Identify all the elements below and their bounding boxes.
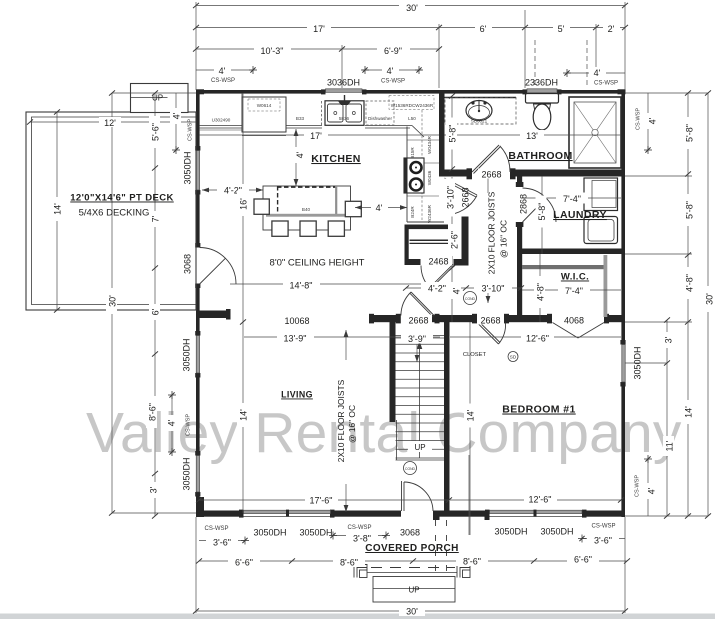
svg-text:CS-WSP: CS-WSP — [381, 79, 405, 85]
svg-text:14': 14' — [53, 203, 63, 215]
svg-text:UP: UP — [414, 443, 425, 452]
svg-text:8'-6": 8'-6" — [148, 403, 158, 421]
svg-text:3050DH: 3050DH — [253, 528, 286, 538]
svg-text:30': 30' — [108, 295, 118, 307]
svg-text:13'-9": 13'-9" — [284, 334, 307, 344]
svg-text:30': 30' — [406, 3, 418, 13]
svg-text:4'-8": 4'-8" — [536, 283, 546, 301]
svg-text:6': 6' — [151, 308, 161, 315]
svg-text:3'-10": 3'-10" — [446, 186, 456, 209]
svg-text:CLOSET: CLOSET — [463, 352, 487, 358]
svg-text:12': 12' — [104, 118, 116, 128]
svg-text:COND: COND — [465, 297, 476, 301]
svg-text:4': 4' — [172, 112, 182, 119]
svg-text:17': 17' — [310, 131, 322, 141]
svg-text:2868: 2868 — [519, 194, 529, 214]
svg-text:2X10 FLOOR JOISTS: 2X10 FLOOR JOISTS — [487, 191, 497, 274]
svg-text:4': 4' — [648, 117, 658, 124]
svg-text:14': 14' — [466, 409, 476, 421]
svg-text:6'-6": 6'-6" — [574, 555, 592, 565]
svg-text:KITCHEN: KITCHEN — [311, 153, 360, 165]
svg-text:LIVING: LIVING — [281, 390, 313, 400]
svg-text:3068: 3068 — [183, 254, 193, 274]
svg-text:2668: 2668 — [481, 170, 501, 180]
svg-text:CS-WSP: CS-WSP — [592, 524, 616, 530]
svg-text:17'-6": 17'-6" — [310, 496, 333, 506]
svg-text:W0436: W0436 — [427, 170, 432, 185]
svg-text:4': 4' — [594, 68, 601, 78]
svg-text:CS-WSP: CS-WSP — [635, 475, 641, 497]
svg-text:2668: 2668 — [408, 316, 428, 326]
svg-text:10'-3": 10'-3" — [261, 46, 284, 56]
svg-text:4': 4' — [295, 151, 305, 158]
svg-text:4': 4' — [376, 203, 383, 213]
svg-text:W2436R: W2436R — [427, 204, 432, 223]
svg-text:3050DH: 3050DH — [182, 457, 192, 490]
svg-text:2X10 FLOOR JOISTS: 2X10 FLOOR JOISTS — [336, 379, 346, 462]
svg-text:8'0" CEILING HEIGHT: 8'0" CEILING HEIGHT — [270, 258, 365, 269]
svg-text:W0614: W0614 — [257, 103, 272, 108]
svg-text:3050DH: 3050DH — [540, 527, 573, 537]
svg-text:2668: 2668 — [480, 316, 500, 326]
svg-text:BATHROOM: BATHROOM — [508, 150, 572, 162]
svg-text:14': 14' — [684, 406, 694, 418]
svg-text:3068: 3068 — [400, 528, 420, 538]
svg-text:Valley Rental Company: Valley Rental Company — [86, 401, 682, 465]
svg-text:3': 3' — [664, 336, 674, 343]
svg-text:4': 4' — [219, 66, 226, 76]
svg-text:CS-WSP: CS-WSP — [348, 525, 372, 531]
svg-text:3': 3' — [149, 486, 159, 493]
svg-text:6'-6": 6'-6" — [235, 558, 253, 568]
svg-text:2668: 2668 — [461, 187, 471, 207]
svg-text:2': 2' — [608, 24, 615, 34]
svg-text:30': 30' — [705, 293, 715, 305]
svg-text:3'-6": 3'-6" — [594, 536, 612, 546]
svg-text:3050DH: 3050DH — [494, 527, 527, 537]
svg-text:CS-WSP: CS-WSP — [205, 526, 229, 532]
svg-text:B33: B33 — [296, 116, 305, 121]
svg-text:4': 4' — [167, 419, 177, 426]
svg-text:13': 13' — [526, 131, 538, 141]
svg-text:12'-6": 12'-6" — [529, 495, 552, 505]
svg-text:U302490: U302490 — [212, 118, 231, 123]
svg-text:LAUNDRY: LAUNDRY — [553, 209, 607, 221]
svg-text:14'-8": 14'-8" — [290, 281, 313, 291]
svg-text:Dishwasher: Dishwasher — [368, 116, 392, 121]
svg-text:3'-8": 3'-8" — [353, 534, 371, 544]
svg-text:3'-9": 3'-9" — [408, 334, 426, 344]
svg-text:SB6021: SB6021 — [471, 119, 488, 124]
svg-text:14': 14' — [239, 409, 249, 421]
svg-text:2'-6": 2'-6" — [450, 231, 460, 249]
svg-text:W.I.C.: W.I.C. — [561, 272, 589, 283]
svg-text:3050DH: 3050DH — [633, 346, 643, 379]
svg-text:3036DH: 3036DH — [327, 78, 360, 88]
svg-text:2336DH: 2336DH — [525, 78, 558, 88]
svg-text:4': 4' — [387, 66, 394, 76]
svg-text:10068: 10068 — [284, 316, 309, 326]
svg-text:CS-WSP: CS-WSP — [188, 119, 194, 141]
svg-text:3050DH: 3050DH — [299, 528, 332, 538]
svg-text:5'-8": 5'-8" — [537, 203, 547, 221]
svg-text:L50: L50 — [408, 116, 416, 121]
svg-text:B40: B40 — [302, 207, 311, 212]
svg-text:CS-WSP: CS-WSP — [211, 78, 235, 84]
svg-text:BEDROOM #1: BEDROOM #1 — [502, 404, 575, 416]
svg-text:3050DH: 3050DH — [183, 151, 193, 184]
svg-text:6'-9": 6'-9" — [384, 46, 402, 56]
svg-text:@ 16" OC: @ 16" OC — [499, 220, 509, 258]
svg-text:5836: 5836 — [339, 116, 350, 121]
svg-text:4068: 4068 — [564, 316, 584, 326]
svg-text:30': 30' — [406, 607, 418, 617]
svg-text:5/4X6 DECKING: 5/4X6 DECKING — [79, 208, 150, 219]
svg-text:@ 16" OC: @ 16" OC — [347, 405, 357, 443]
svg-text:5'-8": 5'-8" — [685, 124, 695, 142]
svg-text:COND: COND — [405, 467, 416, 471]
svg-text:CS-WSP: CS-WSP — [186, 414, 192, 436]
svg-text:4'-8": 4'-8" — [685, 274, 695, 292]
svg-text:8'-6": 8'-6" — [463, 557, 481, 567]
svg-text:12'0"X14'6" PT DECK: 12'0"X14'6" PT DECK — [70, 193, 174, 204]
svg-text:17': 17' — [313, 24, 325, 34]
svg-text:CS-WSP: CS-WSP — [636, 108, 642, 130]
svg-text:7': 7' — [151, 215, 161, 222]
svg-text:3'-6": 3'-6" — [213, 538, 231, 548]
svg-text:12'-6": 12'-6" — [526, 334, 549, 344]
svg-text:COVERED PORCH: COVERED PORCH — [365, 543, 459, 554]
svg-text:2468: 2468 — [428, 257, 448, 267]
svg-text:7'-4": 7'-4" — [563, 194, 581, 204]
svg-text:SD: SD — [510, 355, 517, 360]
svg-text:4': 4' — [647, 487, 657, 494]
svg-text:5'-6": 5'-6" — [151, 123, 161, 141]
svg-text:UP: UP — [408, 586, 419, 595]
svg-text:7'-4": 7'-4" — [565, 286, 583, 296]
svg-text:W1536RDCW2436R: W1536RDCW2436R — [391, 103, 434, 108]
svg-text:5': 5' — [558, 24, 565, 34]
svg-text:W0434R: W0434R — [427, 135, 432, 154]
svg-text:CS-WSP: CS-WSP — [594, 81, 618, 87]
svg-text:B15R: B15R — [410, 147, 415, 159]
svg-text:3'-10": 3'-10" — [482, 284, 505, 294]
svg-text:8'-6": 8'-6" — [340, 558, 358, 568]
svg-text:5'-8": 5'-8" — [448, 125, 458, 143]
svg-text:4'-2": 4'-2" — [428, 284, 446, 294]
svg-text:5'-8": 5'-8" — [685, 201, 695, 219]
svg-text:6': 6' — [480, 24, 487, 34]
svg-text:11': 11' — [665, 440, 675, 451]
svg-text:3050DH: 3050DH — [182, 338, 192, 371]
svg-text:B24R: B24R — [410, 206, 415, 218]
svg-text:16': 16' — [239, 198, 249, 210]
